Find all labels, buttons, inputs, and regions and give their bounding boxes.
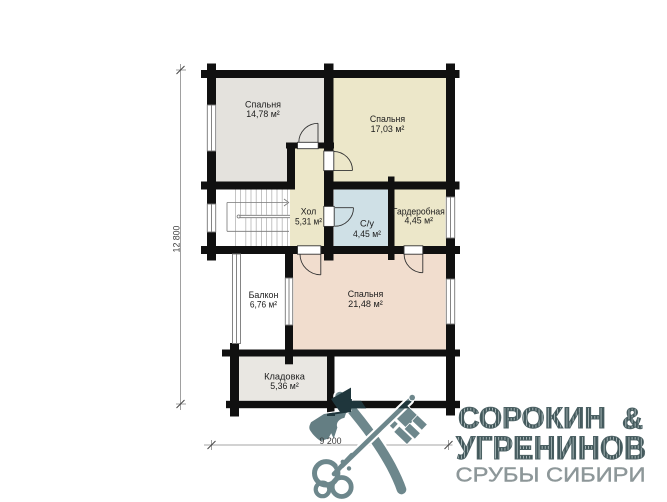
svg-text:12 800: 12 800 <box>172 225 182 252</box>
svg-text:Спальня: Спальня <box>370 114 405 124</box>
svg-text:5,31 м²: 5,31 м² <box>295 216 322 226</box>
svg-text:Хол: Хол <box>301 206 317 216</box>
svg-text:14,78 м²: 14,78 м² <box>246 109 280 119</box>
svg-text:17,03 м²: 17,03 м² <box>371 124 405 134</box>
svg-text:СРУБЫ СИБИРИ: СРУБЫ СИБИРИ <box>456 464 646 487</box>
svg-text:УГРЕНИНОВ: УГРЕНИНОВ <box>456 430 646 466</box>
svg-text:6,76 м²: 6,76 м² <box>250 299 277 309</box>
svg-text:9 200: 9 200 <box>319 436 341 446</box>
svg-text:Спальня: Спальня <box>245 100 281 110</box>
svg-text:С/у: С/у <box>360 218 374 228</box>
svg-text:Кладовка: Кладовка <box>264 371 306 381</box>
svg-text:21,48 м²: 21,48 м² <box>348 299 383 309</box>
svg-text:4,45 м²: 4,45 м² <box>353 229 381 239</box>
svg-text:5,36 м²: 5,36 м² <box>270 381 299 391</box>
svg-text:4,45 м²: 4,45 м² <box>405 216 434 226</box>
svg-text:Спальня: Спальня <box>348 289 384 299</box>
